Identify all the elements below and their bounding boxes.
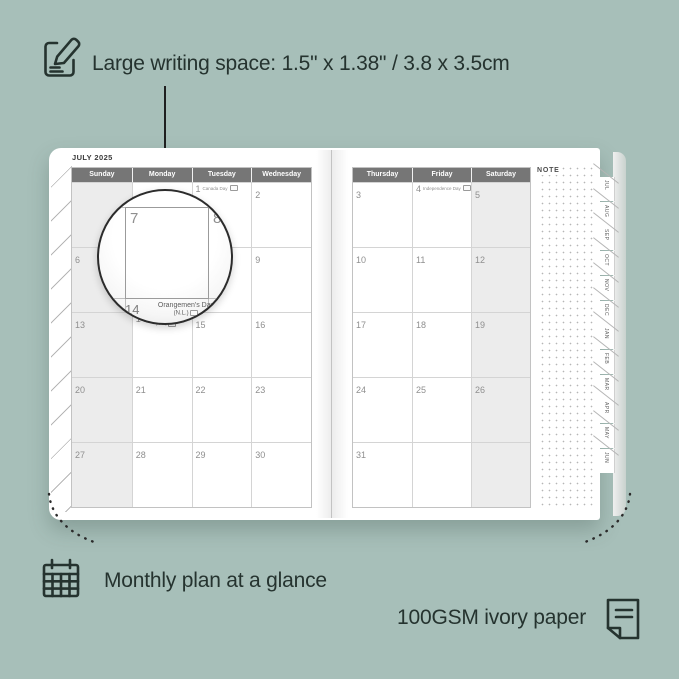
calendar-cell: 22 <box>192 377 252 442</box>
feature-text-writing-space: Large writing space: 1.5" x 1.38" / 3.8 … <box>92 50 510 78</box>
spread-gutter-shadow <box>316 150 348 518</box>
magnified-date: 7 <box>130 210 138 227</box>
calendar-cell: 30 <box>251 442 311 507</box>
note-dot-grid: NOTE <box>537 166 596 508</box>
magnified-date: 14 <box>125 302 139 317</box>
calendar-cell: 13 <box>72 312 132 377</box>
flag-icon <box>230 185 238 191</box>
day-header: Sunday <box>72 168 132 182</box>
calendar-cell: 16 <box>251 312 311 377</box>
calendar-cell: 25 <box>412 377 471 442</box>
flag-icon <box>190 310 198 316</box>
day-header: Tuesday <box>192 168 252 182</box>
calendar-cell: 11 <box>412 247 471 312</box>
calendar-cell: 10 <box>353 247 412 312</box>
feature-text-monthly-plan: Monthly plan at a glance <box>104 567 327 595</box>
calendar-cell: 9 <box>251 247 311 312</box>
magnified-holiday-label: Orangemen's Day (N.L.) <box>141 302 231 318</box>
calendar-cell: 19 <box>471 312 530 377</box>
magnified-date: 8 <box>213 210 221 227</box>
month-tab-feb: FEB <box>599 350 615 374</box>
month-tab-jul: JUL <box>599 177 615 201</box>
day-header: Saturday <box>471 168 530 182</box>
month-tab-may: MAY <box>599 424 615 448</box>
left-page-edge-tabs <box>51 154 72 512</box>
calendar-cell: 29 <box>192 442 252 507</box>
calendar-cell: 28 <box>132 442 192 507</box>
month-tab-nov: NOV <box>599 276 615 300</box>
calendar-cell: 17 <box>353 312 412 377</box>
corner-stitch-right <box>577 492 639 546</box>
holiday-label: Canada Day <box>203 186 228 191</box>
calendar-cell: 3 <box>353 182 412 247</box>
note-pencil-icon <box>37 33 85 81</box>
calendar-cell: 18 <box>412 312 471 377</box>
calendar-cell: 2 <box>251 182 311 247</box>
note-label: NOTE <box>537 166 562 175</box>
calendar-cell: 23 <box>251 377 311 442</box>
calendar-icon <box>38 555 84 601</box>
calendar-cell: 5 <box>471 182 530 247</box>
paper-icon <box>598 594 646 644</box>
calendar-cell: 15 <box>192 312 252 377</box>
calendar-grid-right: Thursday Friday Saturday 3 4 Independenc… <box>352 167 531 508</box>
corner-stitch-left <box>40 492 102 546</box>
calendar-cell: 4 Independence Day <box>412 182 471 247</box>
spread-gutter-line <box>331 150 332 518</box>
month-title: JULY 2025 <box>72 153 113 162</box>
day-header: Monday <box>132 168 192 182</box>
calendar-cell: 12 <box>471 247 530 312</box>
month-tab-oct: OCT <box>599 251 615 275</box>
day-header: Wednesday <box>251 168 311 182</box>
day-header: Friday <box>412 168 471 182</box>
product-infographic: Large writing space: 1.5" x 1.38" / 3.8 … <box>0 0 679 679</box>
month-tab-jan: JAN <box>599 325 615 349</box>
magnifier-lens: 7 8 14 Orangemen's Day (N.L.) <box>97 189 233 325</box>
day-header: Thursday <box>353 168 412 182</box>
holiday-label: Independence Day <box>423 186 461 191</box>
month-tab-jun: JUN <box>599 449 615 473</box>
calendar-cell: 24 <box>353 377 412 442</box>
calendar-cell: 31 <box>353 442 412 507</box>
calendar-cell: 26 <box>471 377 530 442</box>
flag-icon <box>463 185 471 191</box>
calendar-cell <box>412 442 471 507</box>
feature-text-paper: 100GSM ivory paper <box>397 604 586 632</box>
calendar-cell: 20 <box>72 377 132 442</box>
calendar-cell <box>471 442 530 507</box>
calendar-cell: 21 <box>132 377 192 442</box>
